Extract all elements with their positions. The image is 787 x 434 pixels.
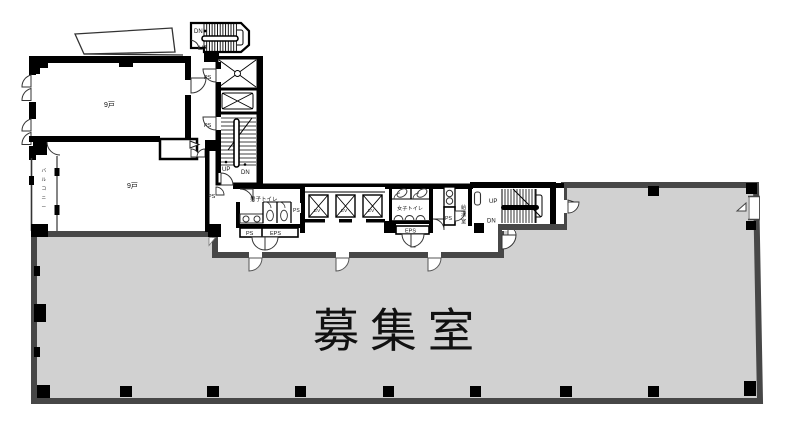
- svg-text:ニ: ニ: [42, 195, 47, 200]
- svg-text:9戸: 9戸: [127, 182, 138, 190]
- svg-text:バ: バ: [42, 168, 47, 173]
- svg-text:PS: PS: [208, 194, 216, 200]
- svg-text:湯: 湯: [461, 210, 466, 218]
- svg-text:9戸: 9戸: [104, 101, 115, 109]
- svg-text:ー: ー: [42, 204, 47, 209]
- svg-text:PS: PS: [445, 216, 452, 222]
- svg-text:EV: EV: [368, 208, 375, 213]
- svg-text:PS: PS: [293, 208, 300, 214]
- svg-text:EV: EV: [314, 208, 321, 213]
- svg-text:コ: コ: [42, 186, 47, 191]
- svg-text:ル: ル: [42, 177, 47, 182]
- svg-text:UP: UP: [222, 167, 230, 173]
- svg-text:女子トイレ: 女子トイレ: [397, 204, 423, 212]
- svg-text:DN: DN: [487, 219, 496, 225]
- svg-text:室: 室: [461, 217, 466, 225]
- svg-text:PS: PS: [204, 75, 212, 81]
- svg-text:PS: PS: [246, 231, 254, 237]
- svg-text:PS: PS: [204, 123, 212, 129]
- svg-text:UP: UP: [199, 46, 207, 52]
- svg-text:EPS: EPS: [270, 231, 281, 237]
- svg-text:給: 給: [461, 203, 467, 211]
- svg-text:DN: DN: [241, 170, 250, 176]
- svg-text:UP: UP: [489, 199, 497, 205]
- svg-text:DN: DN: [194, 29, 203, 35]
- svg-text:募集室: 募集室: [313, 305, 486, 357]
- svg-text:EV: EV: [341, 208, 348, 213]
